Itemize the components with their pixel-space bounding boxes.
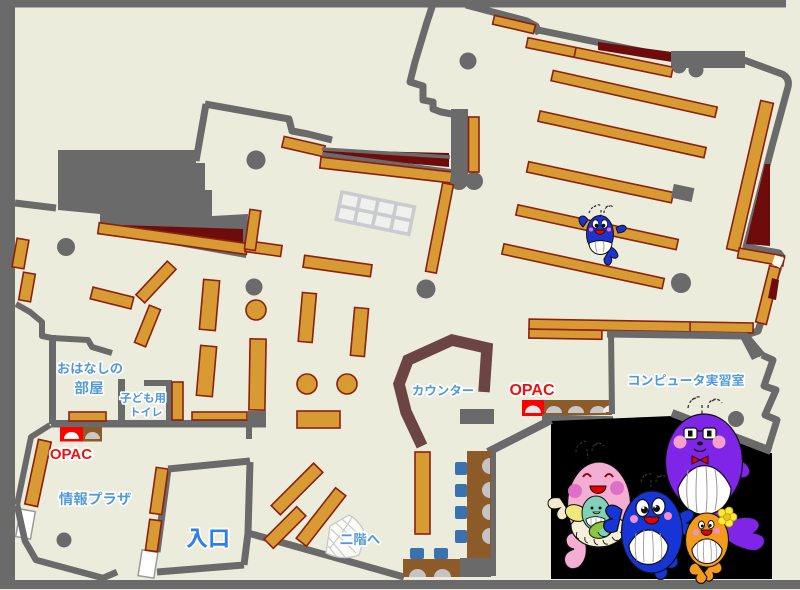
svg-text:OPAC: OPAC [509,382,554,399]
svg-text:OPAC: OPAC [50,446,92,463]
